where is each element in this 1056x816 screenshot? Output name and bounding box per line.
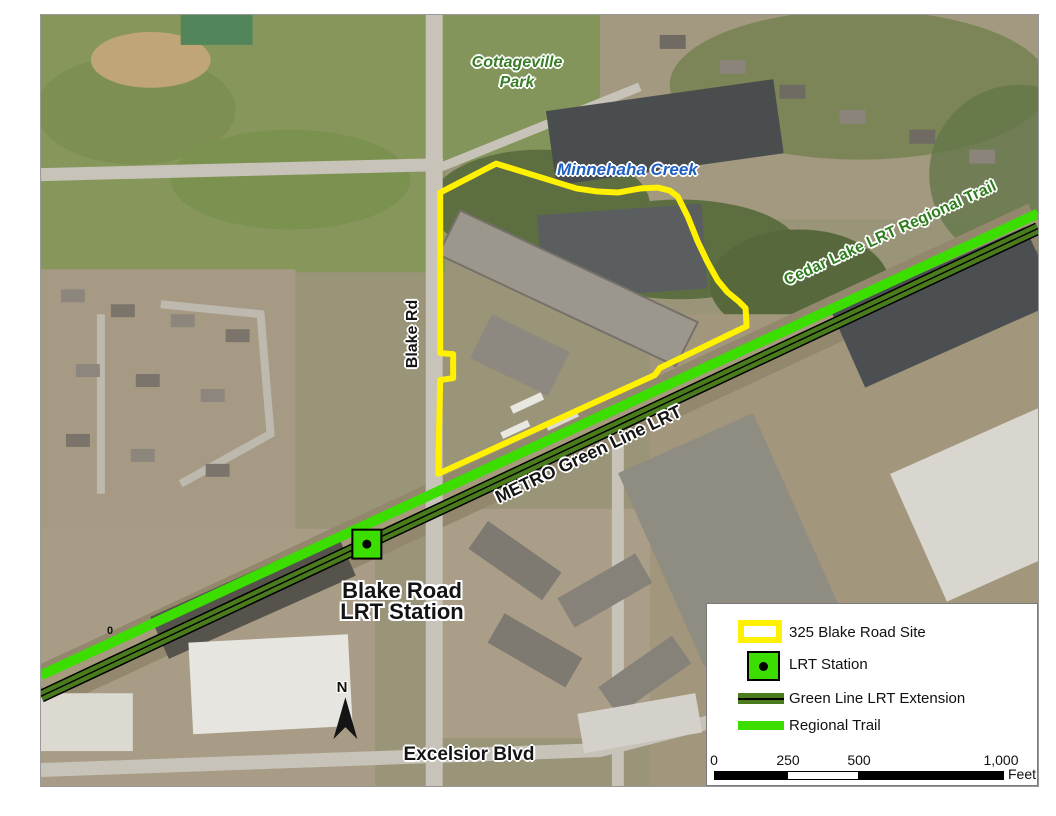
legend: 325 Blake Road Site LRT Station Green Li… xyxy=(706,603,1038,786)
scale-tick-250: 250 xyxy=(770,752,806,768)
trail-zero-marker: 0 xyxy=(107,625,113,637)
cottageville-park-label: Cottageville Park xyxy=(441,53,593,93)
site-boundary-swatch xyxy=(738,620,782,643)
scale-bar-segment-2 xyxy=(788,772,859,779)
legend-item-green-line: Green Line LRT Extension xyxy=(789,690,965,707)
scale-bar xyxy=(714,771,1004,780)
green-line-swatch xyxy=(738,693,784,704)
page: Cottageville Park Minnehaha Creek Cedar … xyxy=(0,0,1056,816)
station-dot-icon xyxy=(759,662,768,671)
legend-item-trail: Regional Trail xyxy=(789,717,881,734)
station-label-line2: LRT Station xyxy=(340,599,463,624)
lrt-station-swatch xyxy=(747,651,780,681)
excelsior-blvd-label: Excelsior Blvd xyxy=(396,744,542,766)
park-label-line2: Park xyxy=(500,74,535,91)
scale-bar-segment-3 xyxy=(858,772,1003,779)
scale-bar-segment-1 xyxy=(715,772,788,779)
minnehaha-creek-label: Minnehaha Creek xyxy=(557,160,698,180)
north-arrow-label: N xyxy=(331,679,353,696)
scale-unit-label: Feet xyxy=(1008,766,1036,782)
lrt-station-marker xyxy=(352,530,381,559)
scale-tick-500: 500 xyxy=(841,752,877,768)
legend-item-site: 325 Blake Road Site xyxy=(789,624,926,641)
legend-item-station: LRT Station xyxy=(789,656,868,673)
park-label-line1: Cottageville xyxy=(472,54,563,71)
green-line-centerline xyxy=(738,698,784,700)
regional-trail-swatch xyxy=(738,721,784,730)
scale-tick-0: 0 xyxy=(709,752,719,768)
blake-road-lrt-station-label: Blake Road LRT Station xyxy=(311,580,493,622)
blake-rd-label: Blake Rd xyxy=(404,274,422,394)
